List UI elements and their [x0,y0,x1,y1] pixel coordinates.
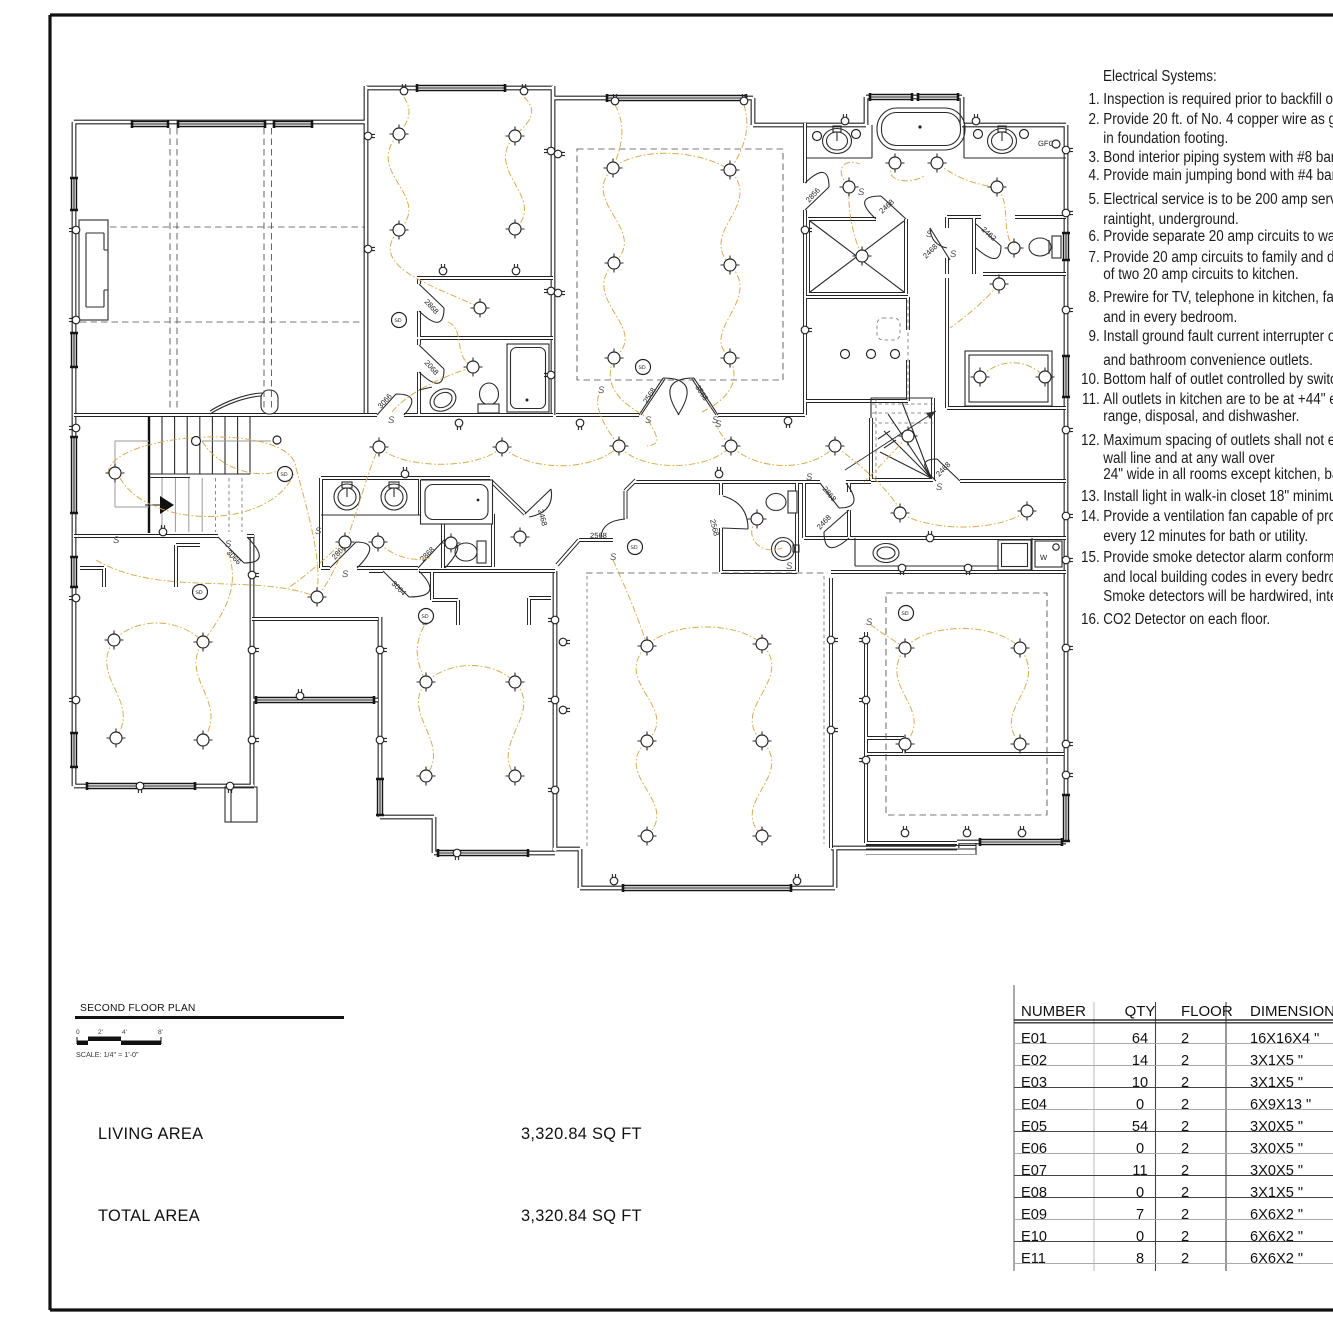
svg-text:2868: 2868 [423,297,441,316]
svg-text:3064: 3064 [390,579,408,597]
svg-text:2462: 2462 [980,225,999,243]
svg-text:0: 0 [76,1029,80,1036]
svg-text:S: S [225,539,232,550]
svg-text:S: S [610,552,617,563]
svg-text:S: S [858,187,865,198]
svg-text:S: S [342,569,349,580]
svg-text:2': 2' [98,1029,103,1036]
svg-text:2468: 2468 [536,508,549,527]
svg-text:2568: 2568 [708,518,721,537]
svg-text:2868: 2868 [820,485,838,504]
svg-text:2468: 2468 [921,242,939,260]
svg-text:S: S [936,482,943,493]
svg-text:8': 8' [158,1029,163,1036]
svg-text:2068: 2068 [423,358,441,377]
svg-text:3066: 3066 [225,548,243,566]
svg-text:S: S [388,415,395,426]
svg-text:S: S [950,249,957,260]
svg-text:SCALE: 1/4" = 1'-0": SCALE: 1/4" = 1'-0" [76,1050,139,1059]
svg-text:3066: 3066 [376,392,394,411]
svg-text:S: S [715,419,722,430]
svg-text:2468: 2468 [934,460,952,478]
svg-text:4': 4' [122,1029,127,1036]
svg-text:S: S [926,229,933,240]
svg-text:S: S [315,526,322,537]
svg-text:S: S [806,472,813,483]
svg-text:S: S [645,415,652,426]
svg-text:S: S [113,535,120,546]
svg-text:S: S [786,561,793,572]
svg-text:2868: 2868 [418,545,436,563]
svg-text:2468: 2468 [877,197,896,215]
svg-text:S: S [866,617,873,628]
svg-text:S: S [598,385,605,396]
svg-text:W: W [1040,553,1048,562]
svg-text:2568: 2568 [590,531,607,540]
svg-text:2468: 2468 [815,513,833,532]
svg-text:2856: 2856 [804,186,822,205]
